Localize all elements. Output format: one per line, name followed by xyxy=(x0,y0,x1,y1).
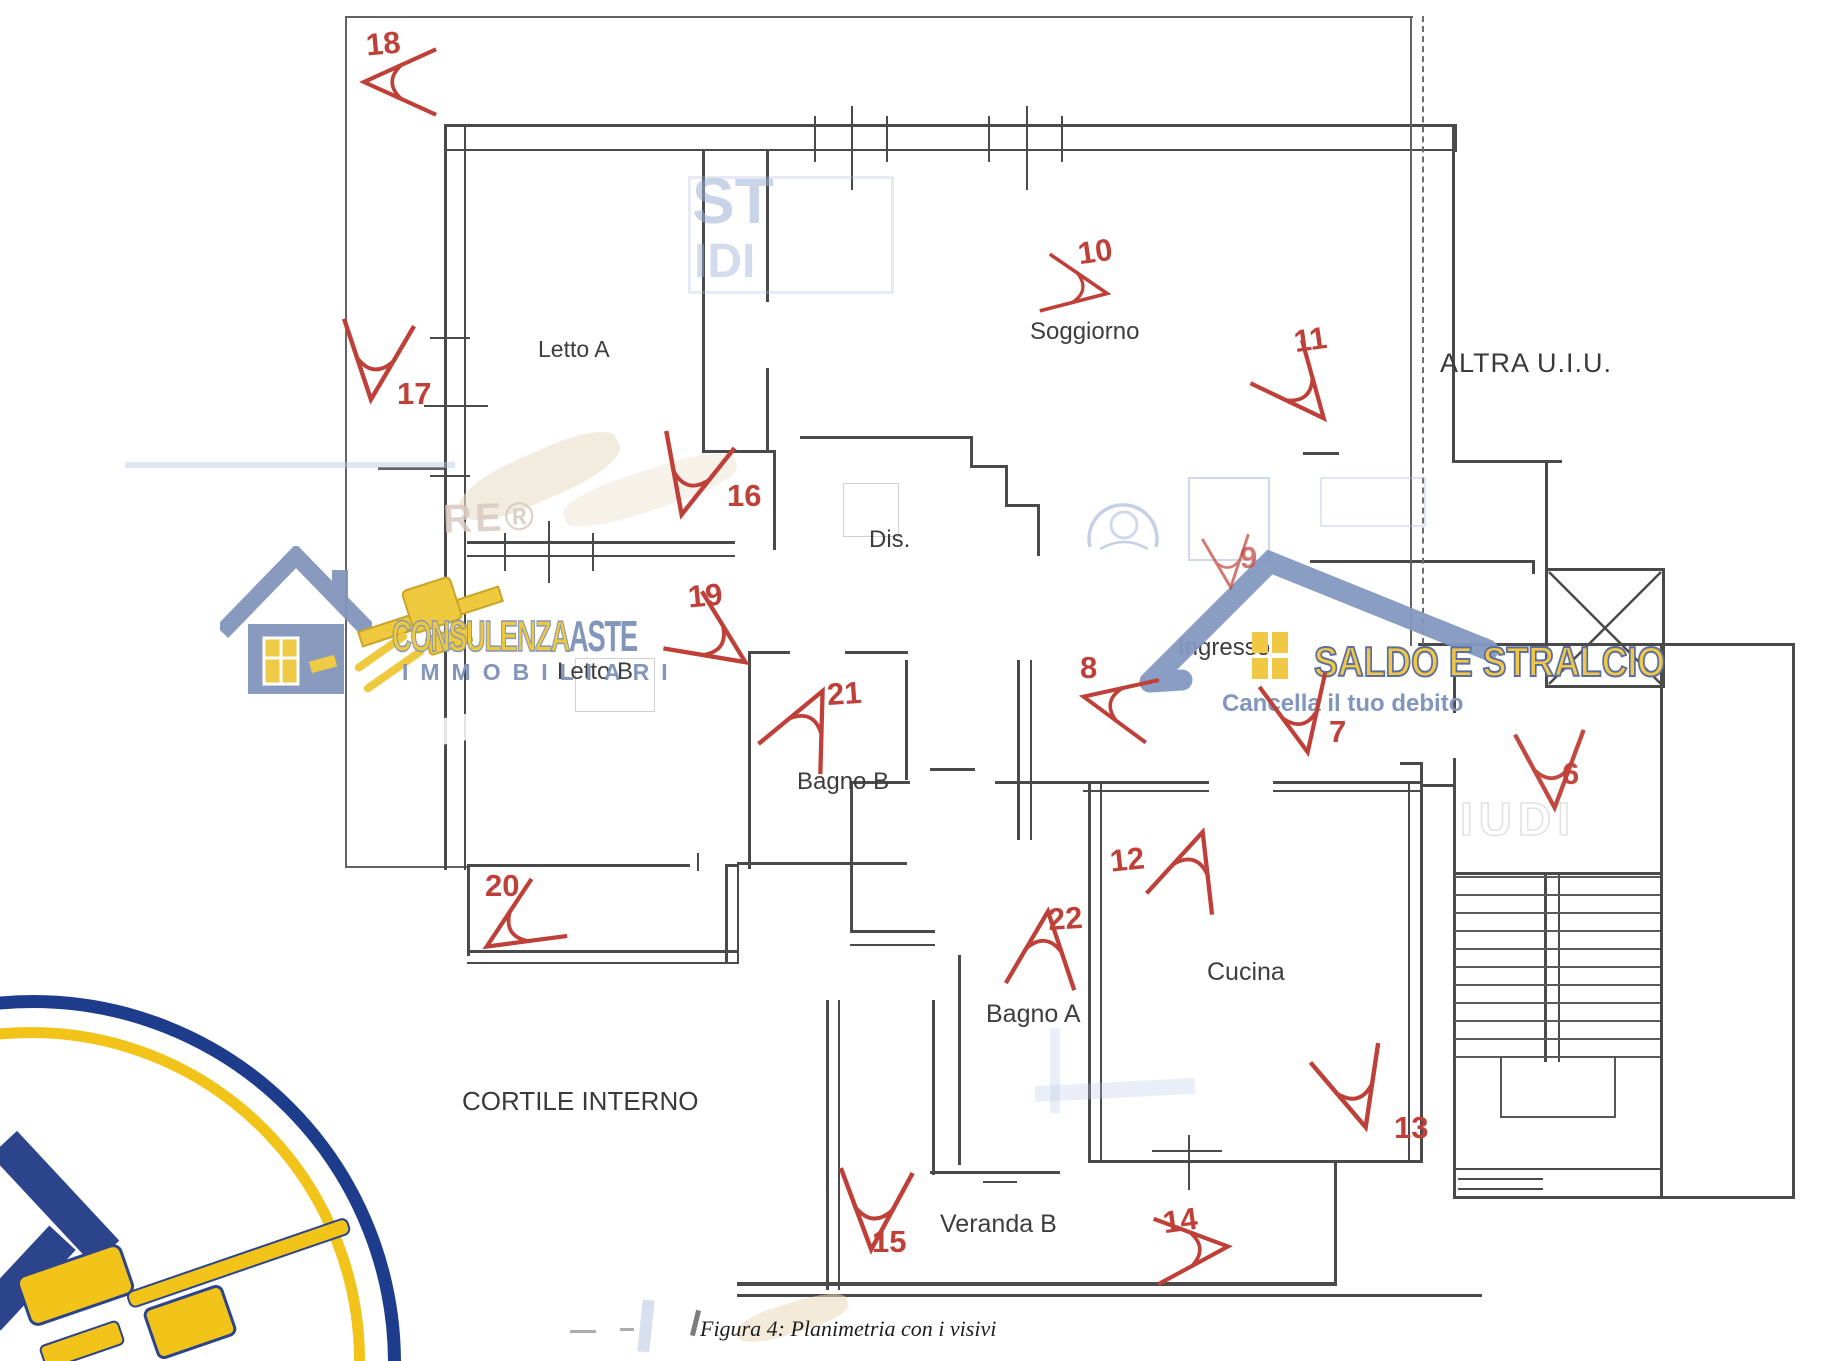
view-marker-number-13: 13 xyxy=(1394,1110,1428,1146)
wall-segment xyxy=(737,862,907,865)
wall-segment xyxy=(1792,643,1795,1199)
wall-segment xyxy=(1660,643,1663,1196)
floorplan-canvas: ST IDI RE® IUDI Letto ASoggiornoDis.Lett… xyxy=(0,0,1847,1361)
view-marker-number-14: 14 xyxy=(1161,1201,1200,1241)
wall-segment xyxy=(1090,1160,1423,1163)
view-marker-number-22: 22 xyxy=(1047,900,1084,938)
wall-segment xyxy=(958,955,961,1165)
wall-segment xyxy=(932,1000,935,1175)
view-marker-number-19: 19 xyxy=(686,577,723,616)
wall-segment xyxy=(773,450,776,550)
wall-segment xyxy=(1455,966,1660,968)
view-marker-number-17: 17 xyxy=(397,376,431,412)
wall-segment xyxy=(445,124,1457,127)
wall-segment xyxy=(886,116,888,162)
consulenza-aste-wordmark: CONSULENZAASTE xyxy=(392,612,637,662)
room-label-dis: Dis. xyxy=(869,526,910,554)
wall-segment xyxy=(814,116,816,162)
wall-segment xyxy=(1452,124,1455,462)
wall-segment xyxy=(1545,462,1548,568)
wall-segment xyxy=(737,864,739,962)
wall-segment xyxy=(1532,560,1535,574)
wall-segment xyxy=(424,405,488,407)
wall-segment xyxy=(1408,781,1410,1163)
wall-segment xyxy=(1334,1163,1337,1285)
room-label-letto-a: Letto A xyxy=(538,336,610,363)
wall-segment xyxy=(930,768,975,771)
view-cone-icon xyxy=(1506,724,1598,816)
wall-segment xyxy=(1458,1188,1543,1190)
wall-segment xyxy=(1420,784,1455,787)
wall-segment xyxy=(1273,790,1423,792)
wall-segment xyxy=(1030,660,1032,840)
wall-segment xyxy=(467,541,735,544)
view-marker-number-18: 18 xyxy=(364,25,401,64)
wall-segment xyxy=(983,1181,1017,1183)
wall-segment xyxy=(1005,465,1008,507)
wall-segment xyxy=(930,1171,1060,1174)
view-marker-number-10: 10 xyxy=(1076,232,1115,272)
wall-segment xyxy=(1455,894,1660,896)
view-cone-icon xyxy=(638,424,745,531)
stamp-streak-4 xyxy=(637,1300,654,1353)
wall-segment xyxy=(995,781,1090,784)
wall-segment xyxy=(1458,1178,1543,1180)
room-label-bagno-a: Bagno A xyxy=(986,1000,1081,1029)
wall-segment xyxy=(850,930,935,933)
wall-segment xyxy=(697,853,699,871)
stamp-box-right xyxy=(1320,477,1426,527)
wall-segment xyxy=(1061,116,1063,162)
wall-segment xyxy=(1088,781,1091,1163)
wall-segment xyxy=(850,944,935,946)
wall-segment xyxy=(766,368,769,453)
re-watermark: RE® xyxy=(442,494,538,542)
wall-segment xyxy=(1453,758,1456,1198)
stair-landing xyxy=(1500,1056,1616,1118)
wall-segment xyxy=(845,651,908,654)
wall-segment xyxy=(1455,930,1660,932)
wall-segment xyxy=(430,475,470,477)
wall-segment xyxy=(1453,1196,1795,1199)
wall-segment xyxy=(850,781,853,933)
wall-segment xyxy=(725,864,728,962)
aste-word: ASTE xyxy=(569,612,637,661)
wall-segment xyxy=(1455,984,1660,986)
view-marker-number-6: 6 xyxy=(1562,756,1579,792)
wall-segment xyxy=(1455,1038,1660,1040)
wall-segment xyxy=(1453,872,1663,875)
saldo-window-icon xyxy=(1252,632,1290,682)
label-altra-uiu: ALTRA U.I.U. xyxy=(1440,348,1612,379)
caption-artifact-1 xyxy=(570,1330,596,1333)
wall-segment xyxy=(1303,452,1339,455)
wall-segment xyxy=(1273,781,1423,784)
wall-segment xyxy=(1420,781,1423,1163)
wall-segment xyxy=(1453,1168,1663,1170)
circle-logo-gavel-icon xyxy=(0,1200,380,1361)
wall-segment xyxy=(1455,948,1660,950)
wall-segment xyxy=(1037,504,1040,556)
figure-caption: Figura 4: Planimetria con i visivi xyxy=(700,1316,996,1342)
consulenza-word: CONSULENZA xyxy=(392,612,569,661)
stamp-idi-text: IDI xyxy=(694,234,755,289)
wall-segment xyxy=(1455,876,1660,878)
wall-segment xyxy=(1400,762,1422,765)
view-marker-number-11: 11 xyxy=(1292,320,1329,360)
wall-segment xyxy=(1455,1002,1660,1004)
view-marker-number-12: 12 xyxy=(1108,840,1146,879)
caption-artifact-2 xyxy=(620,1328,634,1331)
view-marker-number-8: 8 xyxy=(1080,650,1097,686)
wall-segment xyxy=(345,16,1413,18)
wall-segment xyxy=(1017,660,1020,840)
wall-segment xyxy=(970,436,973,468)
view-marker-number-9: 9 xyxy=(1240,540,1257,576)
wall-segment xyxy=(905,660,908,780)
wall-segment xyxy=(737,1294,1482,1297)
view-cone-icon xyxy=(1137,814,1245,922)
view-marker-number-21: 21 xyxy=(826,675,863,713)
smudge-3 xyxy=(371,700,541,758)
wall-segment xyxy=(737,1282,1337,1286)
stamp-streak-3 xyxy=(1050,1028,1060,1113)
wall-segment xyxy=(970,465,1008,468)
label-cortile-interno: CORTILE INTERNO xyxy=(462,1086,698,1117)
stamp-st-text: ST xyxy=(692,164,774,238)
immobiliari-wordmark: IMMOBILIARI xyxy=(402,659,680,686)
wall-segment xyxy=(1005,504,1040,507)
stamp-streak-1 xyxy=(125,462,455,468)
wall-segment xyxy=(800,436,972,439)
saldo-stralcio-wordmark: SALDO E STRALCIO xyxy=(1314,638,1665,686)
wall-segment xyxy=(430,337,470,339)
wall-segment xyxy=(345,16,347,868)
wall-segment xyxy=(1100,781,1102,1163)
wall-segment xyxy=(445,149,1457,151)
wall-segment xyxy=(345,866,469,868)
wall-segment xyxy=(467,555,735,557)
view-marker-number-15: 15 xyxy=(872,1224,906,1260)
wall-segment xyxy=(1188,1135,1190,1190)
view-marker-number-20: 20 xyxy=(485,868,519,904)
view-marker-number-16: 16 xyxy=(727,478,761,514)
wall-segment xyxy=(467,864,690,867)
room-label-cucina: Cucina xyxy=(1207,958,1285,987)
wall-segment xyxy=(1152,1150,1222,1152)
room-label-veranda-b: Veranda B xyxy=(940,1210,1057,1239)
wall-segment xyxy=(748,651,751,869)
wall-segment xyxy=(1026,106,1028,190)
wall-segment xyxy=(988,116,990,162)
view-marker-number-7: 7 xyxy=(1329,714,1346,750)
wall-segment xyxy=(1455,912,1660,914)
wall-segment xyxy=(1455,1020,1660,1022)
